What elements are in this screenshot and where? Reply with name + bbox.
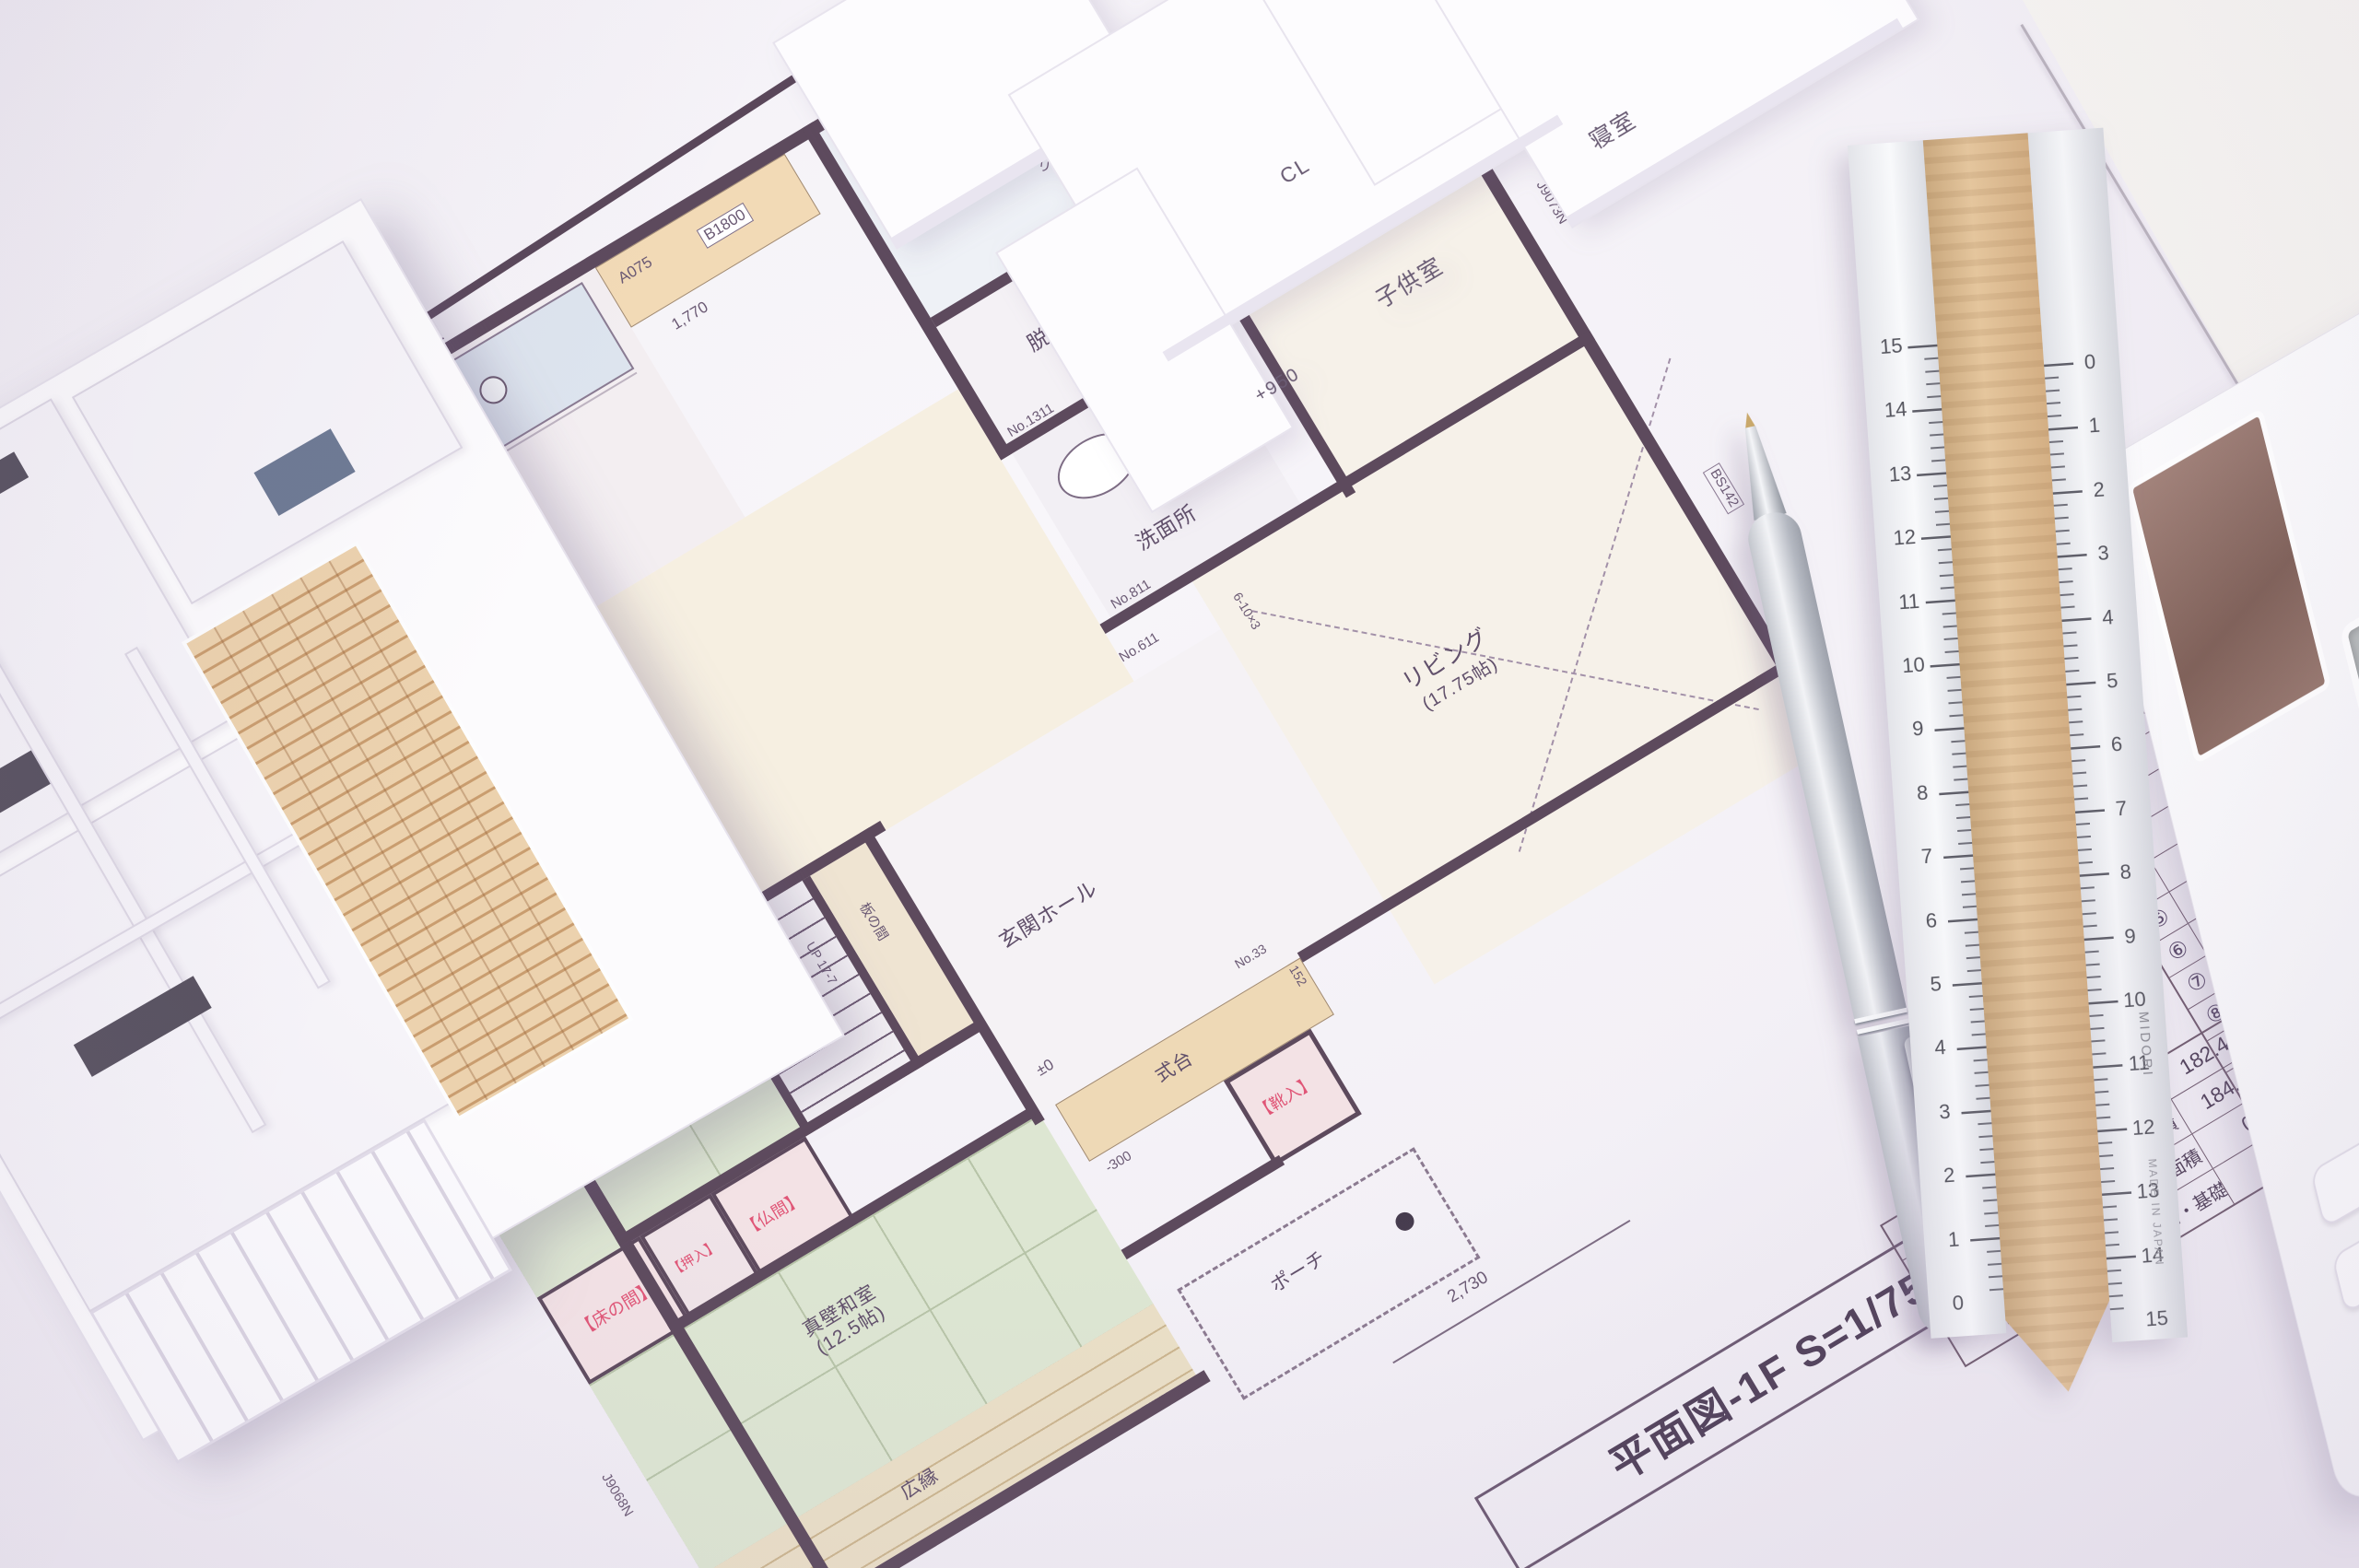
ruler-number: 15	[1863, 333, 1920, 360]
ruler-number: 6	[1903, 907, 1960, 934]
ruler-number: 8	[2097, 859, 2154, 886]
ruler-number: 9	[2102, 922, 2159, 950]
ruler-number: 10	[1885, 651, 1942, 679]
ruler-number: 14	[1867, 396, 1924, 424]
ruler-number: 3	[1917, 1098, 1974, 1126]
ruler-number: 1	[2066, 412, 2123, 439]
ruler-number: 4	[1912, 1035, 1969, 1062]
ruler-number: 2	[1920, 1162, 1978, 1189]
code-no611: No.611	[1117, 630, 1162, 665]
code-j9068n: J9068N	[598, 1471, 636, 1520]
dim-m300: -300	[1103, 1148, 1134, 1176]
ruler-number: 6	[2088, 731, 2145, 759]
dim-1770: 1,770	[668, 298, 711, 333]
ruler-number: 5	[2083, 667, 2141, 695]
ruler-number: 0	[2061, 348, 2118, 376]
ruler-number: 13	[1872, 461, 1929, 488]
ruler-number: 3	[2075, 540, 2132, 568]
ruler-number: 10	[2107, 986, 2164, 1013]
ruler-number: 8	[1894, 779, 1951, 807]
photo-scene: 4,105 KWD11-27DLH=850 勝手 JK2366AN A075 B…	[0, 0, 2359, 1568]
ruler-number: 7	[2093, 795, 2150, 823]
decor-geometry	[1177, 1147, 1480, 1400]
ruler-number: 12	[1876, 524, 1933, 552]
paper-model-label-kids: 子供室	[1368, 248, 1449, 315]
ruler-number: 4	[2080, 603, 2137, 631]
plan-title-box: 平面図-1F S=1/75	[1474, 1232, 1962, 1568]
ruler-number: 0	[1930, 1290, 1987, 1317]
ruler-number: 15	[2129, 1305, 2186, 1333]
ruler-number: 7	[1898, 843, 1955, 871]
ruler-number: 1	[1925, 1225, 1982, 1253]
plan-title: 平面図-1F S=1/75	[1597, 1254, 1939, 1492]
ruler-number: 12	[2115, 1114, 2172, 1141]
ruler-number: 5	[1907, 970, 1965, 998]
ruler-number: 9	[1890, 716, 1947, 743]
ruler-number: 11	[1881, 588, 1938, 615]
ruler-number: 2	[2071, 476, 2128, 504]
pen-cone	[1734, 424, 1787, 521]
